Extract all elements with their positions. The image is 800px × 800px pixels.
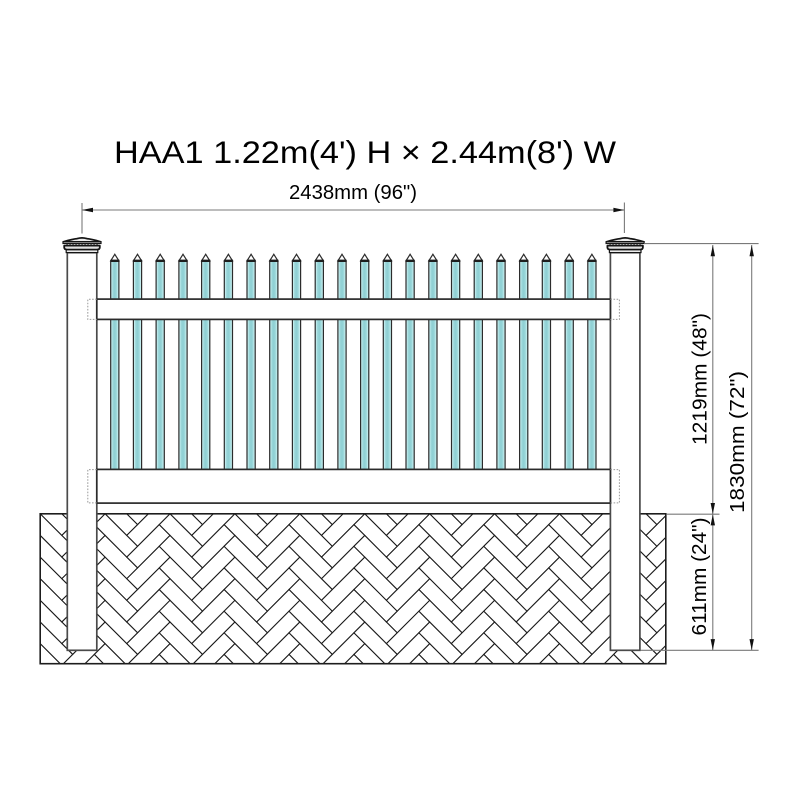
svg-text:611mm (24"): 611mm (24"): [688, 518, 711, 636]
svg-text:2438mm (96"): 2438mm (96"): [289, 181, 417, 204]
svg-text:1219mm (48"): 1219mm (48"): [689, 313, 712, 445]
svg-text:HAA1 1.22m(4') H × 2.44m(8') W: HAA1 1.22m(4') H × 2.44m(8') W: [114, 134, 616, 170]
svg-text:1830mm (72"): 1830mm (72"): [726, 371, 749, 513]
